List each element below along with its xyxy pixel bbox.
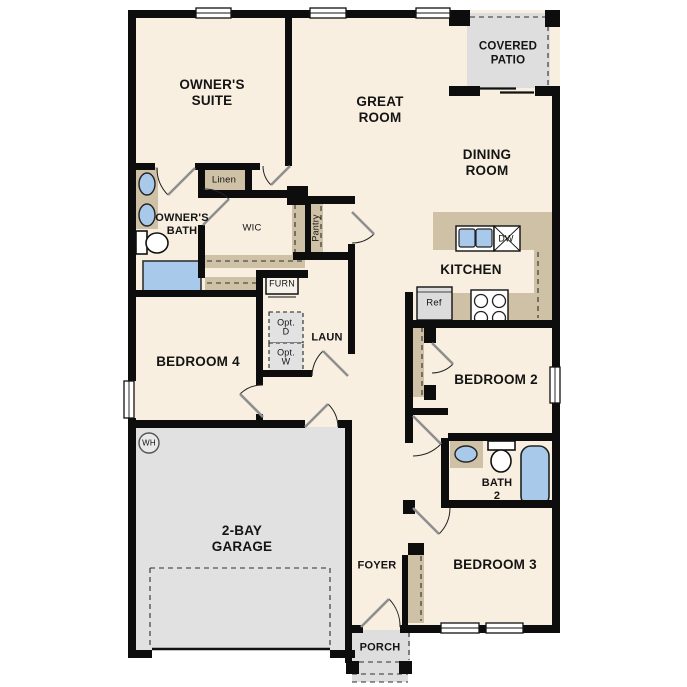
- toilet-bowl: [146, 233, 168, 253]
- toilet-bowl: [491, 450, 511, 472]
- burner: [475, 295, 488, 308]
- porch-step: [352, 674, 408, 682]
- sink-basin: [459, 229, 475, 247]
- floorplan-drawing: [0, 0, 687, 687]
- sink-basin: [139, 204, 155, 226]
- kitchen-counter-right: [534, 250, 552, 322]
- bedroom3-closet: [408, 555, 424, 623]
- patio-floor: [467, 13, 550, 88]
- toilet-tank: [488, 441, 515, 450]
- sink-basin: [139, 173, 155, 195]
- garage-floor: [136, 427, 348, 650]
- floorplan: OWNER'S SUITE GREAT ROOM COVERED PATIO D…: [0, 0, 687, 687]
- floors: [128, 10, 560, 682]
- water-heater: [139, 433, 159, 453]
- sink-basin: [476, 229, 492, 247]
- optional-dryer: [269, 312, 303, 343]
- sink-basin: [455, 446, 477, 462]
- shower-tub: [143, 261, 201, 293]
- wic-shelf-right: [292, 202, 305, 260]
- linen-closet: [203, 170, 245, 190]
- burner: [493, 295, 506, 308]
- bathtub: [521, 446, 549, 506]
- optional-washer: [269, 343, 303, 374]
- bedroom2-closet: [413, 325, 424, 397]
